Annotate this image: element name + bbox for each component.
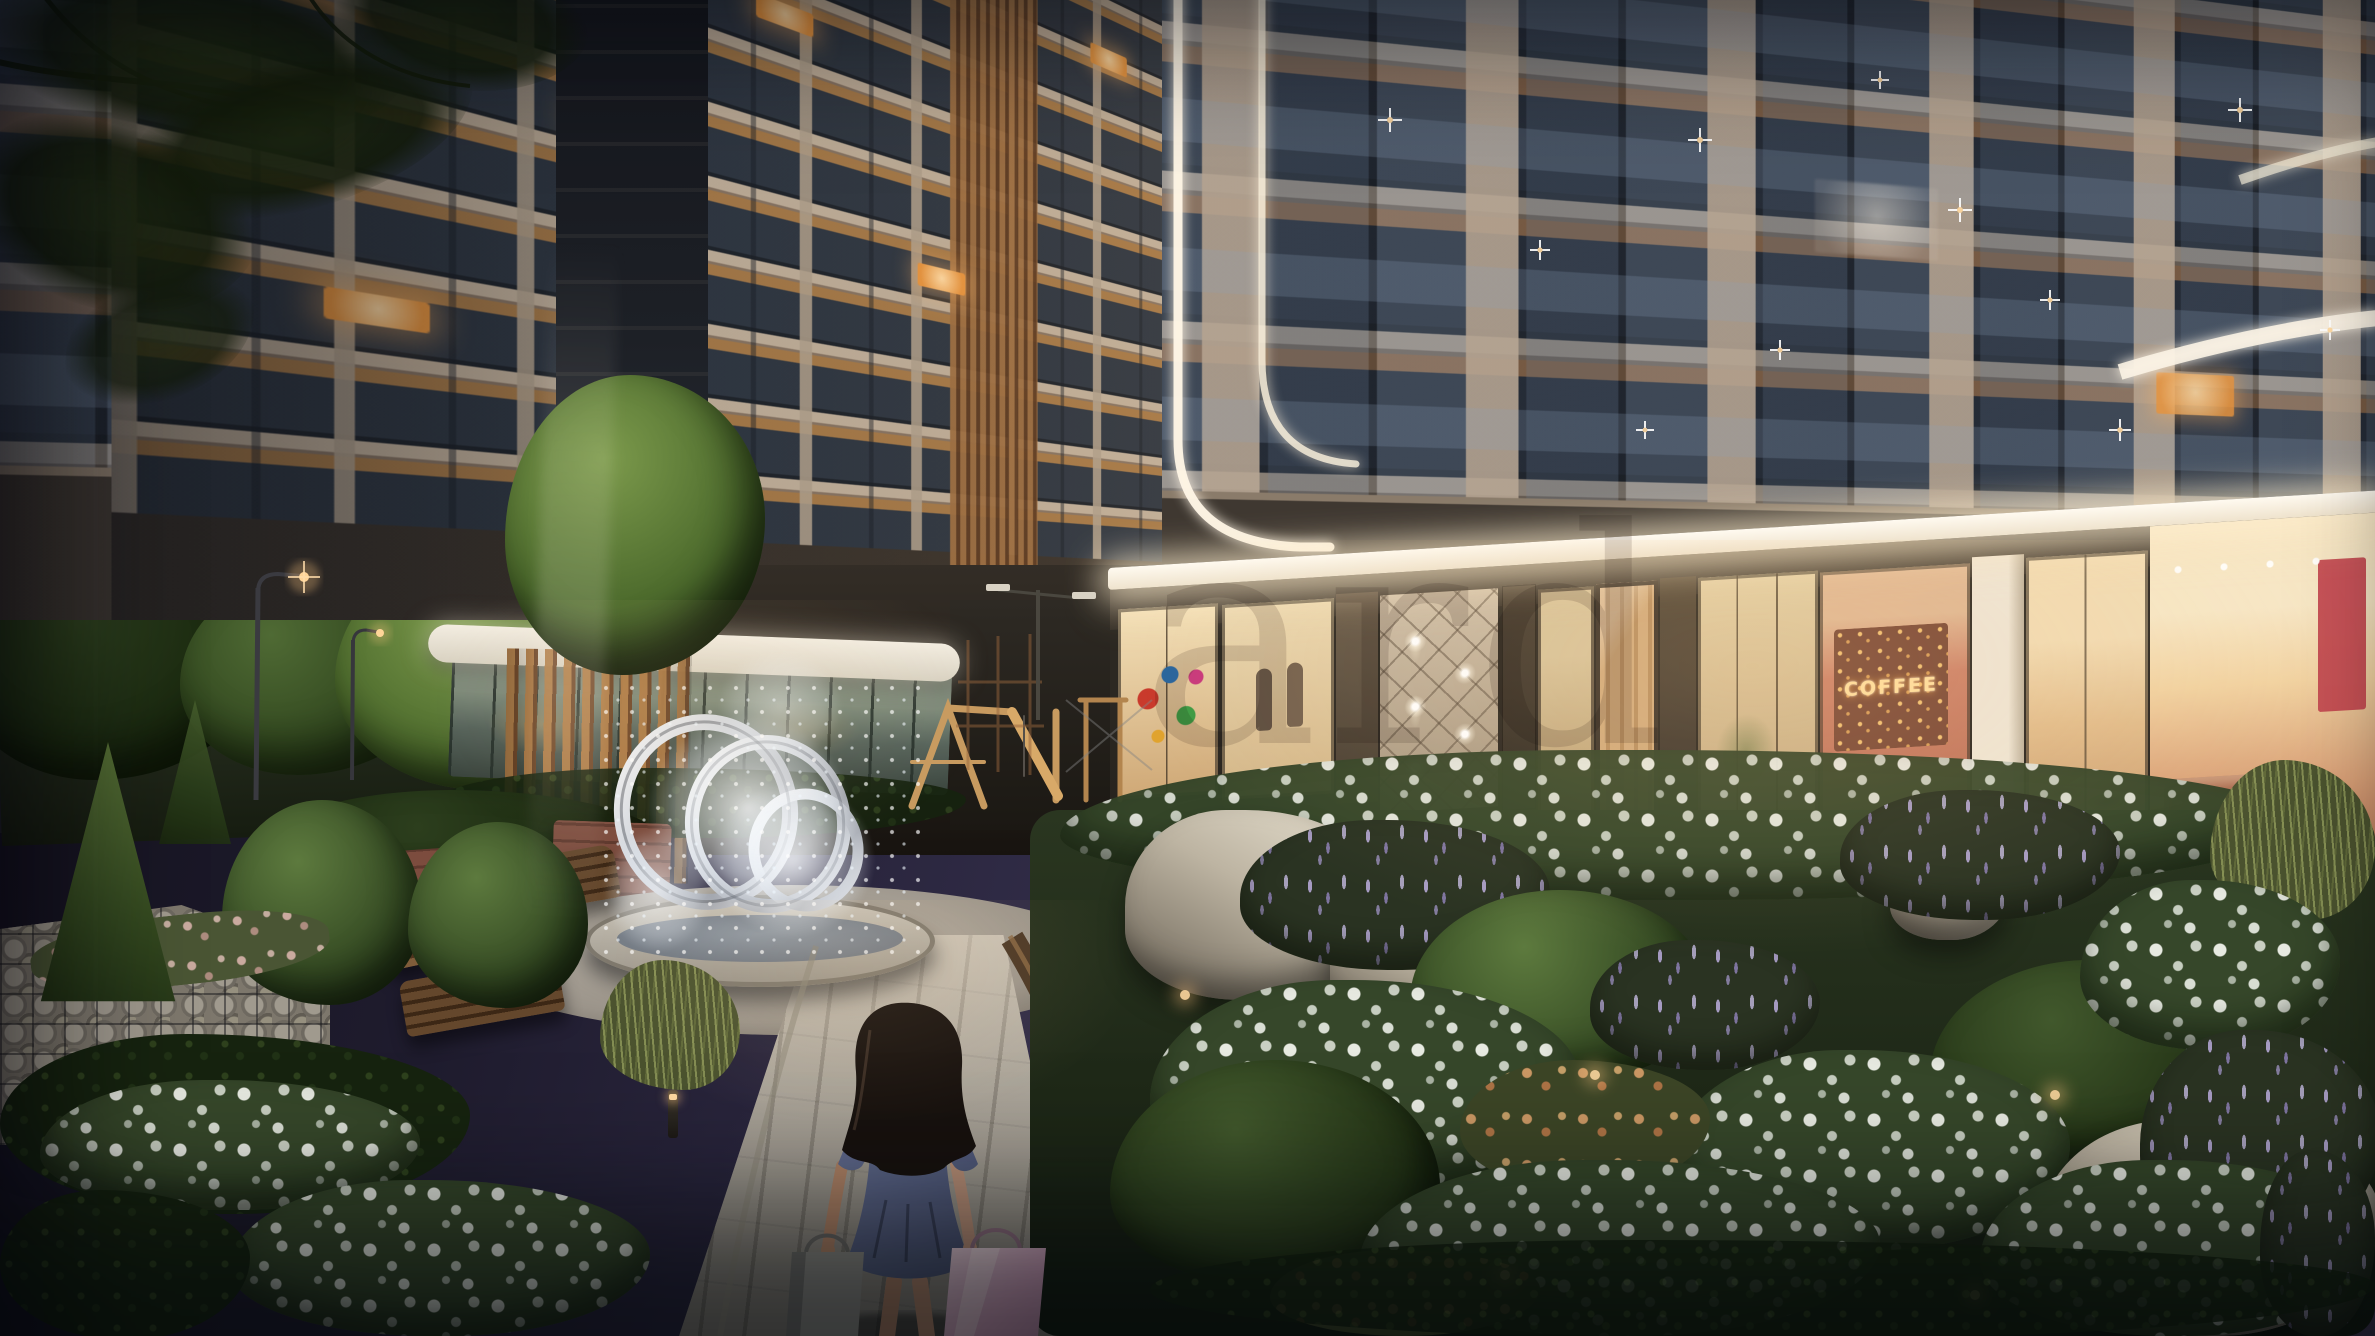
path-lamp <box>986 584 1096 720</box>
girl-leg <box>920 1282 927 1336</box>
storefront-glow-pool <box>1130 540 2375 960</box>
pavilion-glow-pool <box>430 600 970 860</box>
bag-handle <box>972 1230 1020 1248</box>
street-lamp <box>352 622 391 780</box>
walkway-glow-pool <box>600 900 1120 1120</box>
girl-leg <box>887 1282 894 1336</box>
street-lamp <box>256 561 320 800</box>
scene-canvas: COFFEE <box>0 0 2375 1336</box>
